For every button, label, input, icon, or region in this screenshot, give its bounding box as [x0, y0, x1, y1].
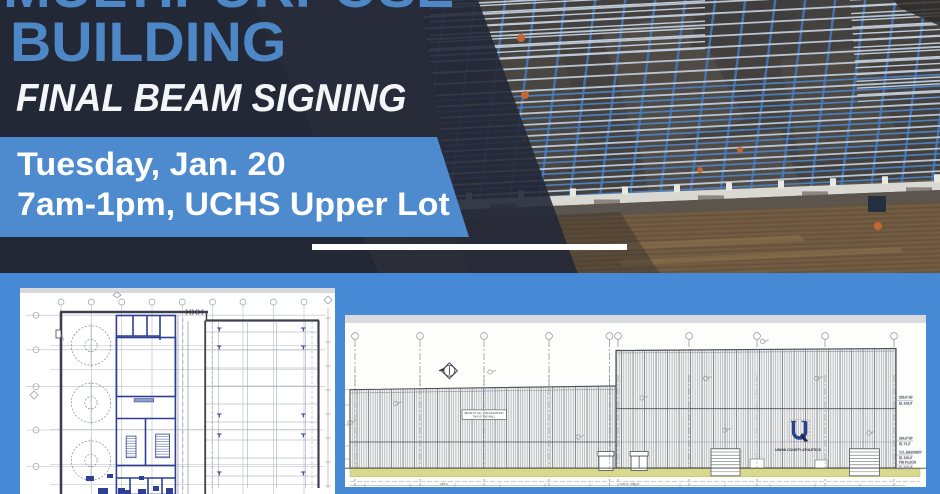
svg-text:194.6' NF: 194.6' NF: [899, 437, 913, 441]
svg-text:EL 103.4': EL 103.4': [899, 401, 913, 405]
svg-text:100-0 / 405-11: 100-0 / 405-11: [620, 482, 640, 486]
svg-text:206.8' NF: 206.8' NF: [899, 396, 913, 400]
svg-text:EL 71.2': EL 71.2': [899, 442, 911, 446]
svg-text:245-6: 245-6: [440, 482, 448, 486]
svg-text:EL 100.0': EL 100.0': [899, 466, 913, 470]
svg-text:T.O. MASONRY: T.O. MASONRY: [899, 451, 923, 455]
svg-text:UNION COUNTY ATHLETICS: UNION COUNTY ATHLETICS: [775, 448, 821, 452]
svg-text:FIN FLOOR: FIN FLOOR: [899, 461, 917, 465]
